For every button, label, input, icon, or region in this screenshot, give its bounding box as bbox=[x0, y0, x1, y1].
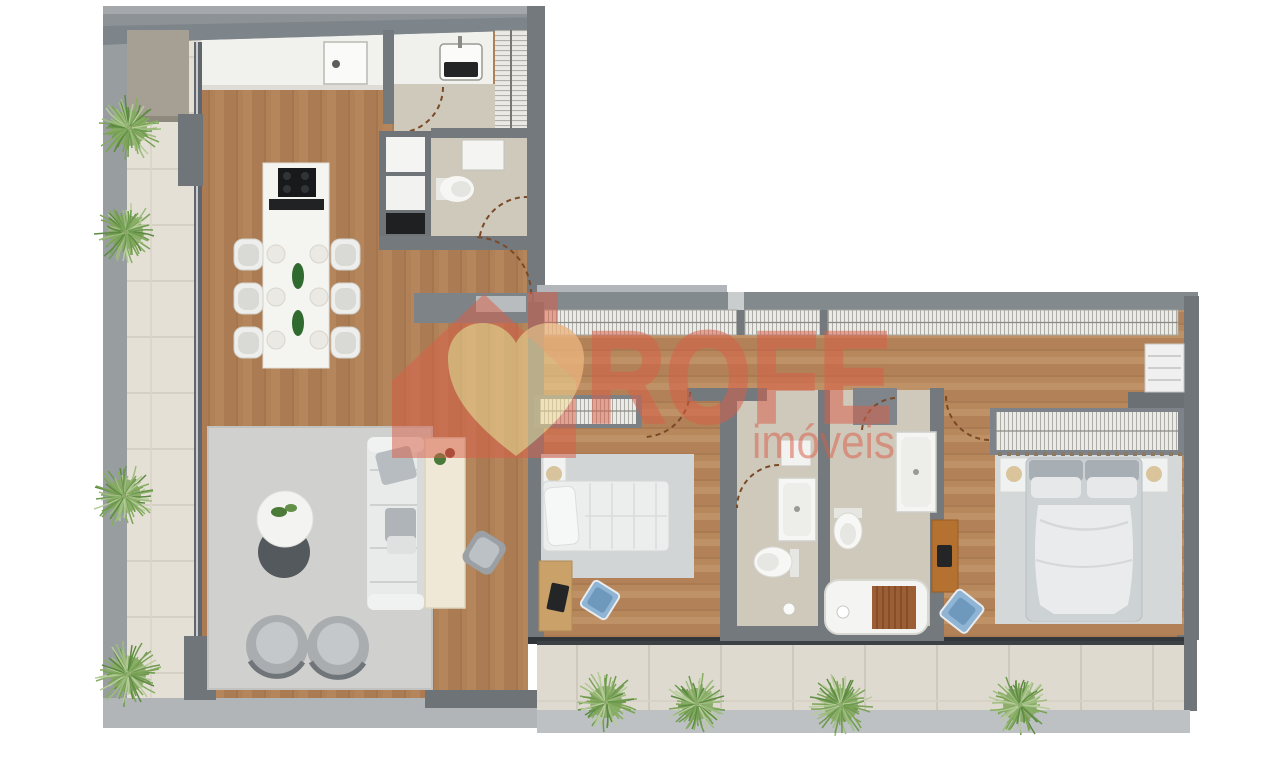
svg-text:imóveis: imóveis bbox=[752, 415, 895, 468]
